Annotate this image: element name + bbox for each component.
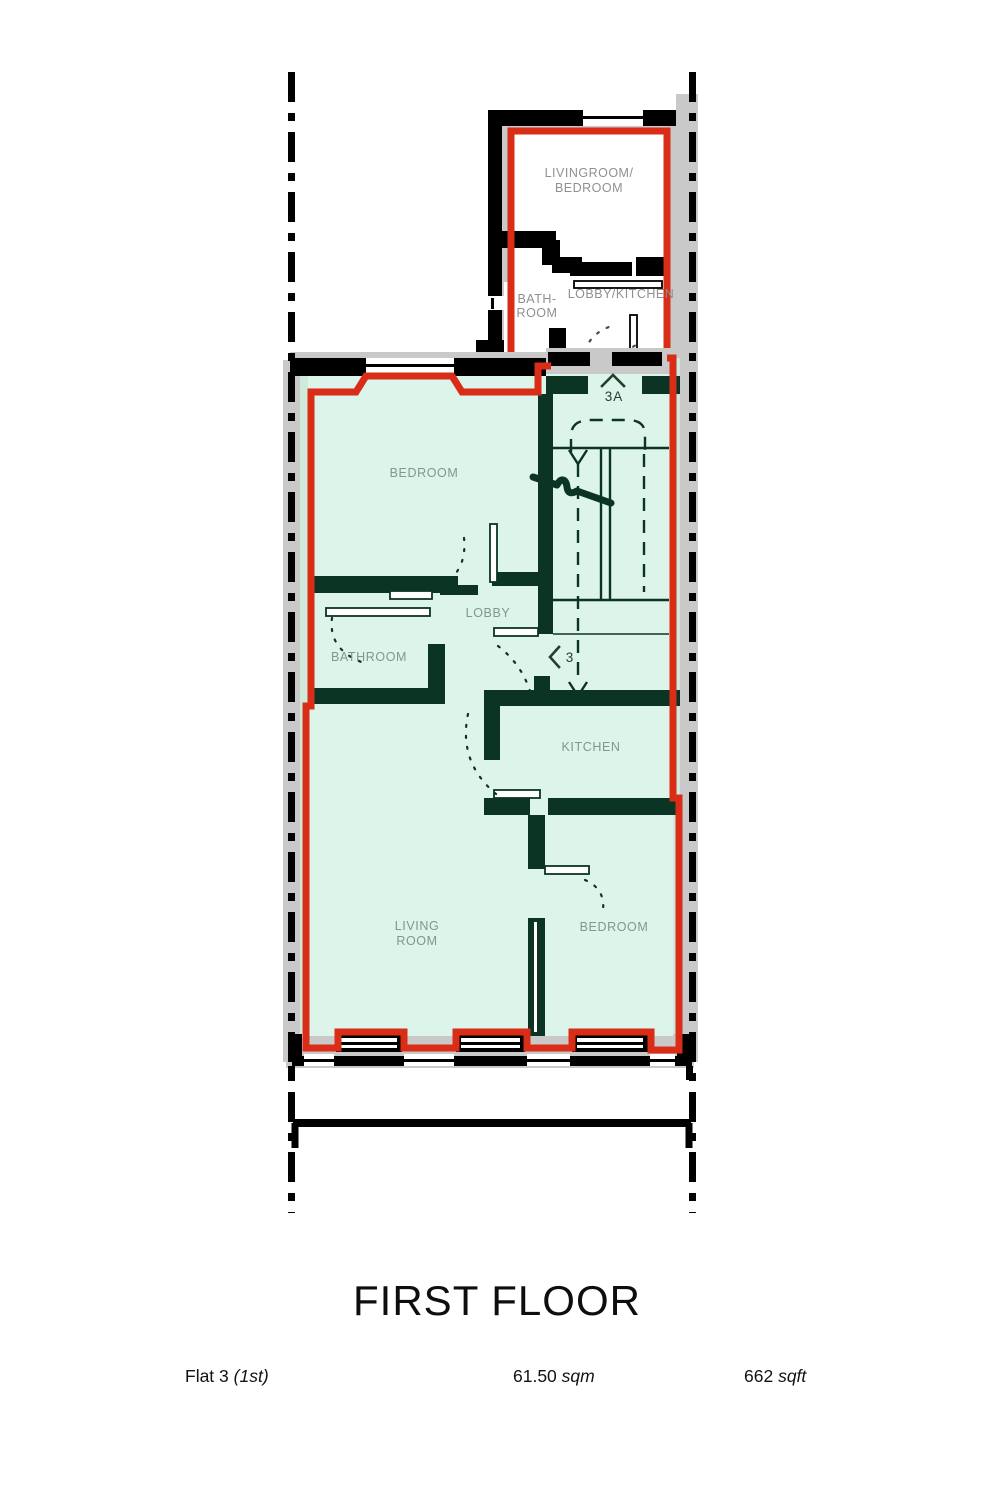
area-sqft-unit: sqft [778, 1366, 807, 1386]
flat-label: Flat 3 (1st) [185, 1366, 269, 1386]
area-sqm: 61.50 sqm [513, 1366, 595, 1386]
door-leaf [494, 628, 538, 636]
area-sqft-value: 662 [744, 1366, 778, 1386]
room-label-bathroom-3a-2: ROOM [517, 306, 558, 320]
door-leaf [326, 608, 430, 616]
entrance-label-3: 3 [566, 650, 575, 665]
door-leaf [545, 866, 589, 874]
door-leaf [390, 591, 432, 599]
room-label-lobby-kitchen: LOBBY/KITCHEN [568, 287, 675, 301]
room-label-bedroom-top: BEDROOM [390, 466, 459, 480]
floorplan-page: LIVINGROOM/ BEDROOM BATH- ROOM LOBBY/KIT… [0, 0, 1000, 1500]
door-leaf [494, 790, 540, 798]
room-label-living-room: LIVING [395, 919, 440, 933]
room-label-lobby: LOBBY [466, 606, 511, 620]
upper-flat-3a: LIVINGROOM/ BEDROOM BATH- ROOM LOBBY/KIT… [476, 110, 684, 374]
floor-plan: LIVINGROOM/ BEDROOM BATH- ROOM LOBBY/KIT… [0, 0, 1000, 1500]
room-label-livingroom-bedroom: LIVINGROOM/ [545, 166, 634, 180]
flat-suffix: (1st) [234, 1366, 269, 1386]
area-sqm-value: 61.50 [513, 1366, 562, 1386]
room-label-livingroom-bedroom-2: BEDROOM [555, 181, 623, 195]
room-label-bathroom: BATHROOM [331, 650, 407, 664]
page-title: FIRST FLOOR [353, 1277, 641, 1324]
flat-name: Flat 3 [185, 1366, 234, 1386]
room-label-bathroom-3a: BATH- [517, 292, 556, 306]
title-block: FIRST FLOOR Flat 3 (1st) 61.50 sqm 662 s… [185, 1277, 807, 1386]
bay-windows [292, 1034, 692, 1066]
room-label-bedroom-bottom: BEDROOM [580, 920, 649, 934]
entrance-label-3a: 3A [605, 389, 624, 404]
door-leaf [490, 524, 497, 582]
room-label-living-room-2: ROOM [396, 934, 437, 948]
area-sqm-unit: sqm [562, 1366, 595, 1386]
area-sqft: 662 sqft [744, 1366, 807, 1386]
room-label-kitchen: KITCHEN [561, 740, 620, 754]
